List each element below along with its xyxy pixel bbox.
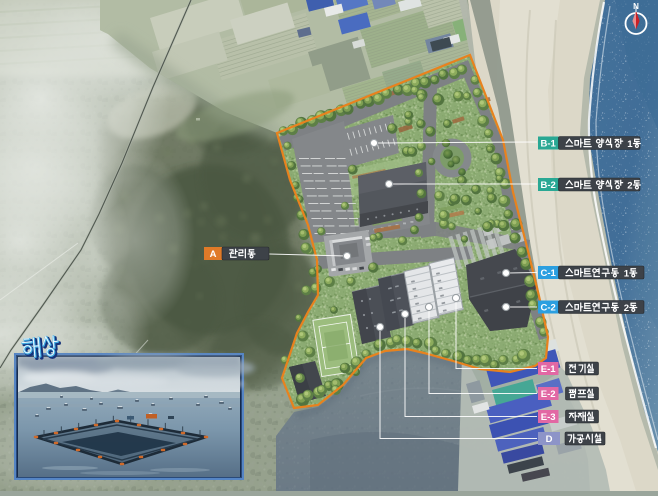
svg-text:B-1: B-1 — [541, 139, 557, 150]
svg-text:A: A — [210, 249, 217, 260]
svg-text:E-1: E-1 — [541, 364, 557, 375]
svg-text:E-2: E-2 — [541, 389, 556, 400]
svg-text:2: 2 — [627, 181, 632, 192]
svg-text:1: 1 — [624, 269, 630, 280]
svg-text:B-2: B-2 — [541, 180, 556, 191]
svg-text:C-2: C-2 — [541, 303, 556, 314]
svg-text:1: 1 — [627, 139, 633, 150]
svg-text:D: D — [546, 434, 553, 445]
svg-text:N: N — [633, 2, 639, 11]
svg-text:2: 2 — [624, 303, 629, 314]
svg-text:C-1: C-1 — [541, 268, 557, 279]
svg-text:E-3: E-3 — [541, 412, 556, 423]
